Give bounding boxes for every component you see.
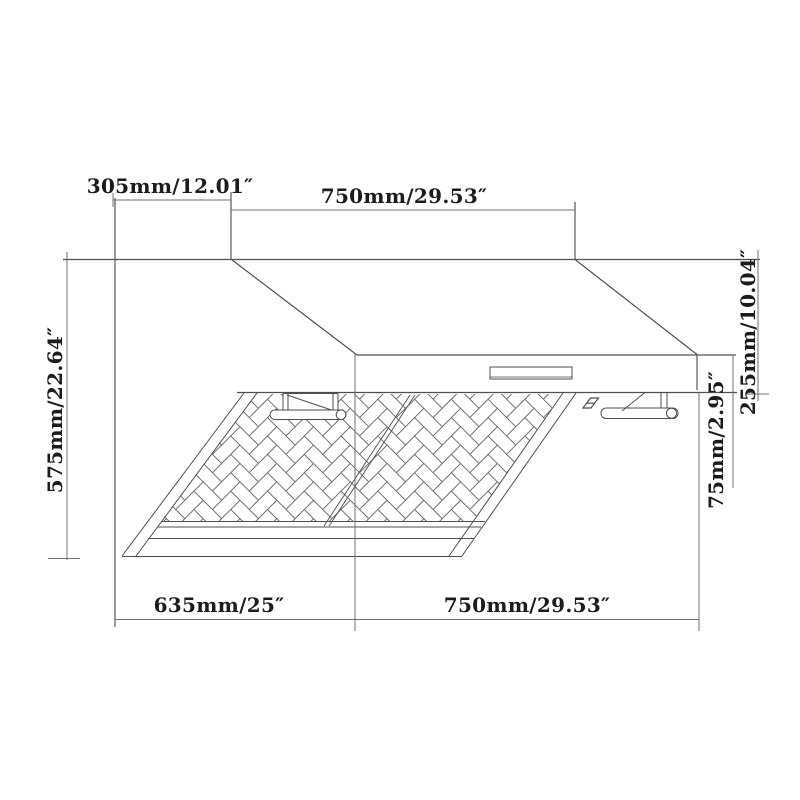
range-hood-dimension-diagram: 305mm/12.01″ 750mm/29.53″ 575mm/22.64″ 2… [0, 0, 800, 800]
hood-line-drawing [0, 0, 800, 800]
dim-right-lower-label: 75mm/2.95″ [704, 371, 728, 509]
dim-left-side-label: 575mm/22.64″ [43, 327, 67, 494]
dim-top-left-label: 305mm/12.01″ [87, 174, 254, 198]
handle-rail-right [601, 393, 678, 419]
dim-top-center-label: 750mm/29.53″ [321, 184, 488, 208]
dim-right-upper-label: 255mm/10.04″ [736, 249, 760, 416]
dim-bottom-left-label: 635mm/25″ [154, 593, 285, 617]
control-panel [490, 367, 572, 379]
dim-bottom-right-label: 750mm/29.53″ [444, 593, 611, 617]
badge-flag-icon [583, 398, 599, 408]
